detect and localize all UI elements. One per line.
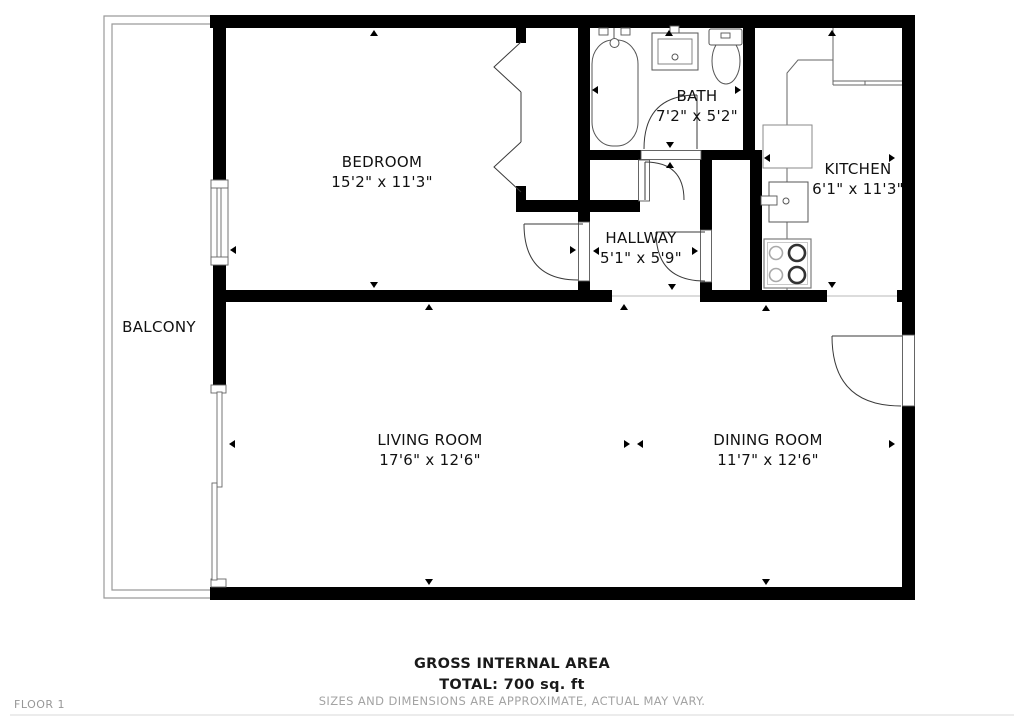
sliding-door — [211, 385, 226, 587]
wall-closet-stub-top — [516, 28, 526, 43]
linen-closet-door — [645, 162, 684, 200]
balcony-outline — [104, 16, 213, 598]
floor-plan: BALCONY BEDROOM 15'2" x 11'3" BATH 7'2" … — [0, 0, 1024, 724]
stove — [764, 239, 811, 288]
dining-room-label: DINING ROOM 11'7" x 12'6" — [668, 431, 868, 469]
room-name: BALCONY — [104, 318, 214, 336]
bifold-closet-doors — [494, 42, 521, 192]
entry-door — [832, 336, 902, 406]
bath-fixtures — [592, 26, 742, 146]
hallway-label: HALLWAY 5'1" x 5'9" — [561, 229, 721, 267]
burner — [770, 269, 783, 282]
room-dims: 5'1" x 5'9" — [561, 249, 721, 267]
floor-plan-drawing — [0, 0, 1024, 724]
kitchen-label: KITCHEN 6'1" x 11'3" — [778, 160, 938, 198]
burner — [789, 245, 805, 261]
linen-closet-door-threshold — [639, 160, 650, 201]
disclaimer: SIZES AND DIMENSIONS ARE APPROXIMATE, AC… — [0, 694, 1024, 708]
room-name: BATH — [617, 87, 777, 105]
burner — [770, 247, 783, 260]
room-dims: 15'2" x 11'3" — [282, 173, 482, 191]
bedroom-window — [211, 180, 228, 265]
wall-top — [210, 15, 915, 28]
living-room-label: LIVING ROOM 17'6" x 12'6" — [330, 431, 530, 469]
kitchen-fixtures — [761, 28, 902, 290]
wall-kitchen-left — [750, 150, 762, 292]
burner — [789, 267, 805, 283]
room-name: BEDROOM — [282, 153, 482, 171]
wall-bedroom-bath — [578, 28, 590, 222]
room-name: HALLWAY — [561, 229, 721, 247]
bath-sink — [652, 26, 698, 70]
gross-area-title: GROSS INTERNAL AREA — [0, 656, 1024, 672]
room-name: DINING ROOM — [668, 431, 868, 449]
room-name: KITCHEN — [778, 160, 938, 178]
entry-door-threshold — [903, 335, 915, 406]
wall-kitchen-bottom-stub — [897, 290, 915, 302]
toilet — [709, 29, 742, 84]
wall-balcony-mid — [213, 265, 226, 385]
room-dims: 11'7" x 12'6" — [668, 451, 868, 469]
wall-balcony-upper — [213, 15, 226, 180]
wall-hallway-right-upper — [700, 150, 712, 230]
walls — [210, 15, 915, 600]
wall-bedroom-door-stub — [578, 281, 590, 302]
bath-door-threshold — [641, 151, 701, 160]
wall-kitchen-bottom — [700, 290, 827, 302]
room-dims: 6'1" x 11'3" — [778, 180, 938, 198]
bedroom-label: BEDROOM 15'2" x 11'3" — [282, 153, 482, 191]
room-dims: 7'2" x 5'2" — [617, 107, 777, 125]
wall-hallway-top — [516, 200, 640, 212]
total-area: TOTAL: 700 sq. ft — [0, 677, 1024, 693]
wall-hallway-right-lower — [700, 282, 712, 302]
wall-bottom — [210, 587, 915, 600]
dimension-arrows — [229, 30, 895, 585]
wall-right-lower — [902, 406, 915, 600]
floor-label: FLOOR 1 — [14, 698, 65, 711]
wall-bedroom-living — [213, 290, 612, 302]
balcony-label: BALCONY — [104, 318, 214, 336]
wall-bath-bottom — [590, 150, 641, 160]
bath-label: BATH 7'2" x 5'2" — [617, 87, 777, 125]
room-dims: 17'6" x 12'6" — [330, 451, 530, 469]
room-name: LIVING ROOM — [330, 431, 530, 449]
